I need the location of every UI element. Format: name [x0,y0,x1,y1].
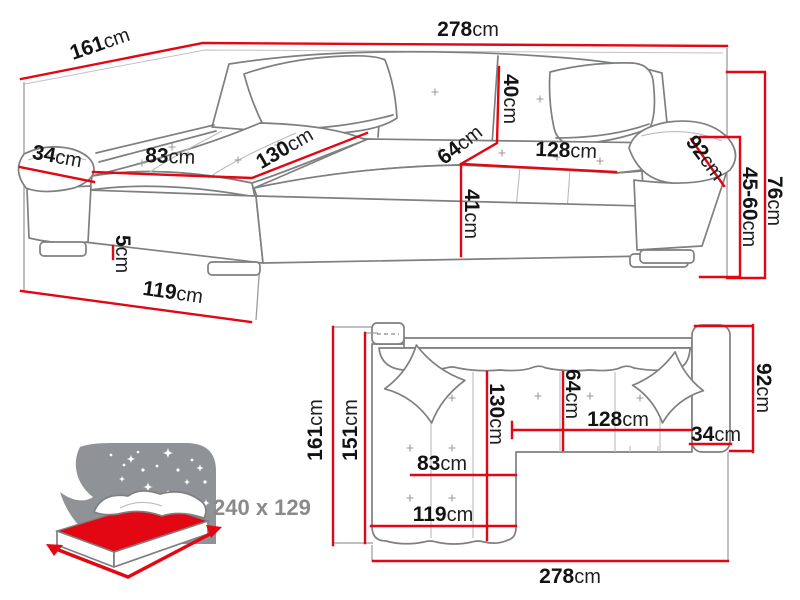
dim-persp-seat-height: 41cm [460,189,483,239]
dim-persp-chaise-depth: 119cm [141,277,204,308]
dim-persp-total-width: 278cm [437,18,499,41]
dim-top-seat-depth: 64cm [561,369,584,419]
dim-top-total-width: 278cm [539,565,601,588]
perspective-view: 278cm 161cm 40cm 64cm 128cm 92cm 45-60cm… [18,18,786,322]
dim-persp-total-height: 76cm [763,176,786,226]
sofa-leg [40,242,86,256]
top-view: 161cm 151cm 130cm 64cm 128cm 34cm 92cm 8… [304,323,775,588]
dim-persp-backrest-height: 40cm [499,74,522,124]
dim-persp-armrest-height-range: 45-60cm [738,167,761,247]
sofa-leg [640,250,694,263]
dim-top-chaise-depth: 119cm [413,503,474,526]
sofa-leg [208,262,260,275]
dim-top-armrest-depth: 92cm [752,363,775,413]
dim-persp-seat-length: 128cm [535,138,597,163]
dim-top-total-depth: 161cm [304,399,327,461]
dim-top-chaise-seat-width: 83cm [417,452,467,475]
diagram-canvas: 278cm 161cm 40cm 64cm 128cm 92cm 45-60cm… [0,0,800,600]
dim-top-armrest-width: 34cm [691,423,741,446]
pillow [550,63,655,144]
dim-persp-chaise-seat-width: 83cm [145,144,196,169]
sleeping-dimensions-label: 240 x 129 [213,495,311,520]
dim-persp-leg-height: 5cm [111,235,134,273]
sofa-dimension-diagram: 278cm 161cm 40cm 64cm 128cm 92cm 45-60cm… [0,0,800,600]
dim-top-chaise-seat-length: 130cm [485,383,508,445]
dim-top-body-depth: 151cm [339,399,362,461]
dim-top-seat-length: 128cm [587,408,649,431]
sleeping-function-icon: 240 x 129 [46,443,311,577]
